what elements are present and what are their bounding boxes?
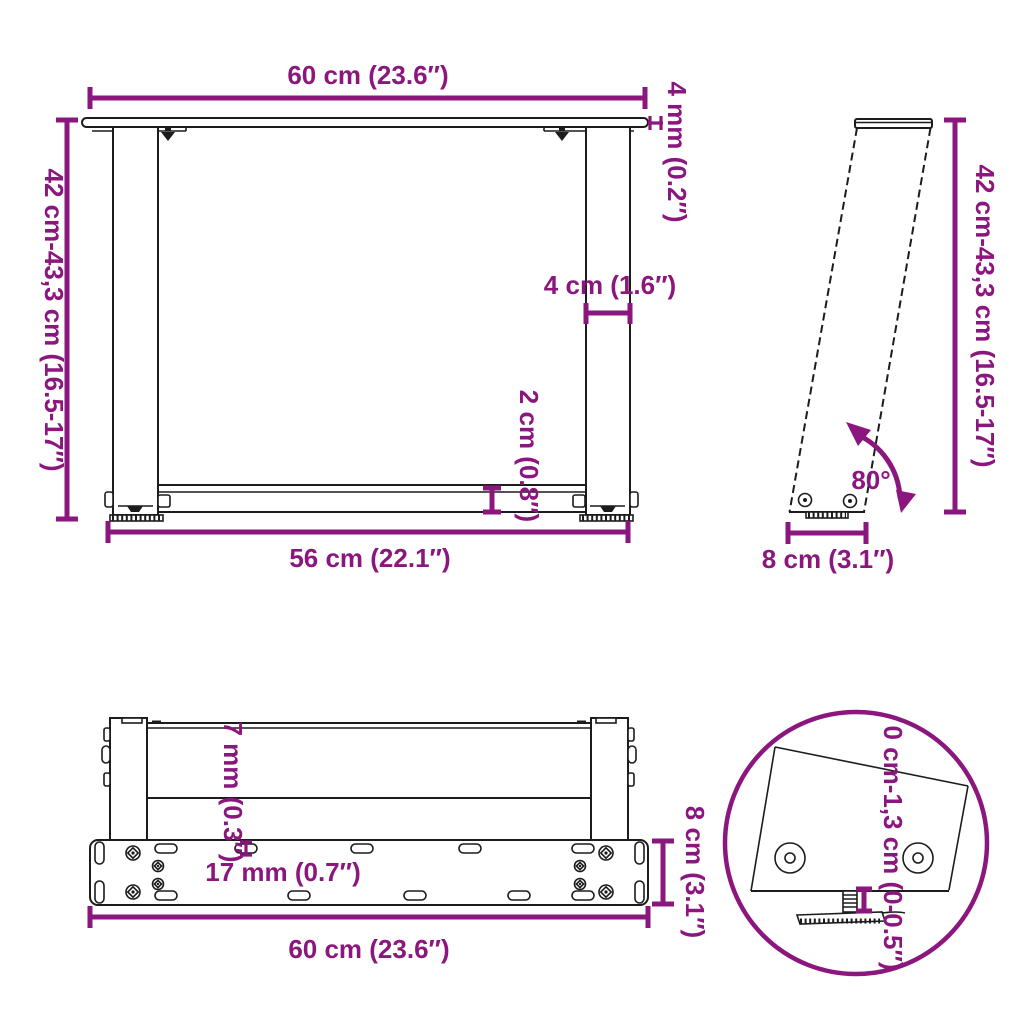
plan-right-leg — [591, 718, 628, 840]
front-left-leg — [113, 127, 158, 515]
dim-label-bar-offset: 7 mm (0.3″) — [218, 721, 248, 862]
side-view: 42 cm-43,3 cm (16.5-17″) 80° 8 cm (3.1″) — [762, 119, 1000, 574]
dim-line-height-right — [944, 120, 966, 512]
dim-label-height-left: 42 cm-43,3 cm (16.5-17″) — [39, 169, 69, 472]
front-view: 60 cm (23.6″) 42 cm-43,3 cm (16.5-17″) 4… — [39, 60, 692, 573]
technical-dimension-diagram: 60 cm (23.6″) 42 cm-43,3 cm (16.5-17″) 4… — [0, 0, 1024, 1024]
plan-view: 7 mm (0.3″) 17 mm (0.7″) 8 cm (3.1″) 60 … — [90, 718, 710, 964]
left-mount-screw-icon — [161, 127, 175, 141]
dim-label-width-bottom: 56 cm (22.1″) — [289, 543, 450, 573]
plan-cross-bar — [147, 723, 591, 798]
adjuster-bolt — [843, 891, 857, 912]
dim-label-leg-width: 4 cm (1.6″) — [544, 270, 676, 300]
dim-label-height-right: 42 cm-43,3 cm (16.5-17″) — [970, 165, 1000, 468]
front-right-leg — [586, 127, 630, 515]
detail-callout-circle — [725, 712, 987, 974]
dim-line-width-top — [90, 87, 645, 109]
dim-marker-plate-thickness — [648, 116, 663, 130]
dim-label-width-top: 60 cm (23.6″) — [287, 60, 448, 90]
table-top-edge — [82, 118, 648, 127]
slanted-leg-edges — [790, 128, 931, 512]
diagram-canvas: 60 cm (23.6″) 42 cm-43,3 cm (16.5-17″) 4… — [0, 0, 1024, 1024]
side-top-cap — [855, 119, 932, 128]
dim-label-plate-depth: 8 cm (3.1″) — [680, 806, 710, 938]
dim-label-bar-height: 2 cm (0.8″) — [514, 390, 544, 522]
dim-line-plate-depth — [652, 841, 674, 904]
dim-label-plate-thickness: 4 mm (0.2″) — [662, 81, 692, 222]
detail-screw-icon — [775, 843, 805, 873]
dim-label-foot-depth: 8 cm (3.1″) — [762, 544, 894, 574]
dim-label-plate-width: 60 cm (23.6″) — [288, 934, 449, 964]
arc-arrowhead-down-icon — [896, 490, 916, 513]
right-mount-screw-icon — [555, 127, 569, 141]
dim-line-width-bottom — [108, 521, 628, 543]
dim-label-adjust-range: 0 cm-1,3 cm (0-0.5″) — [878, 725, 908, 970]
detail-view: 0 cm-1,3 cm (0-0.5″) — [725, 712, 987, 974]
dim-label-angle: 80° — [851, 465, 890, 495]
dim-line-plate-width — [90, 906, 648, 928]
dim-line-foot-depth — [788, 522, 866, 544]
dim-label-hole-spacing: 17 mm (0.7″) — [205, 857, 361, 887]
plan-left-leg — [110, 718, 147, 840]
